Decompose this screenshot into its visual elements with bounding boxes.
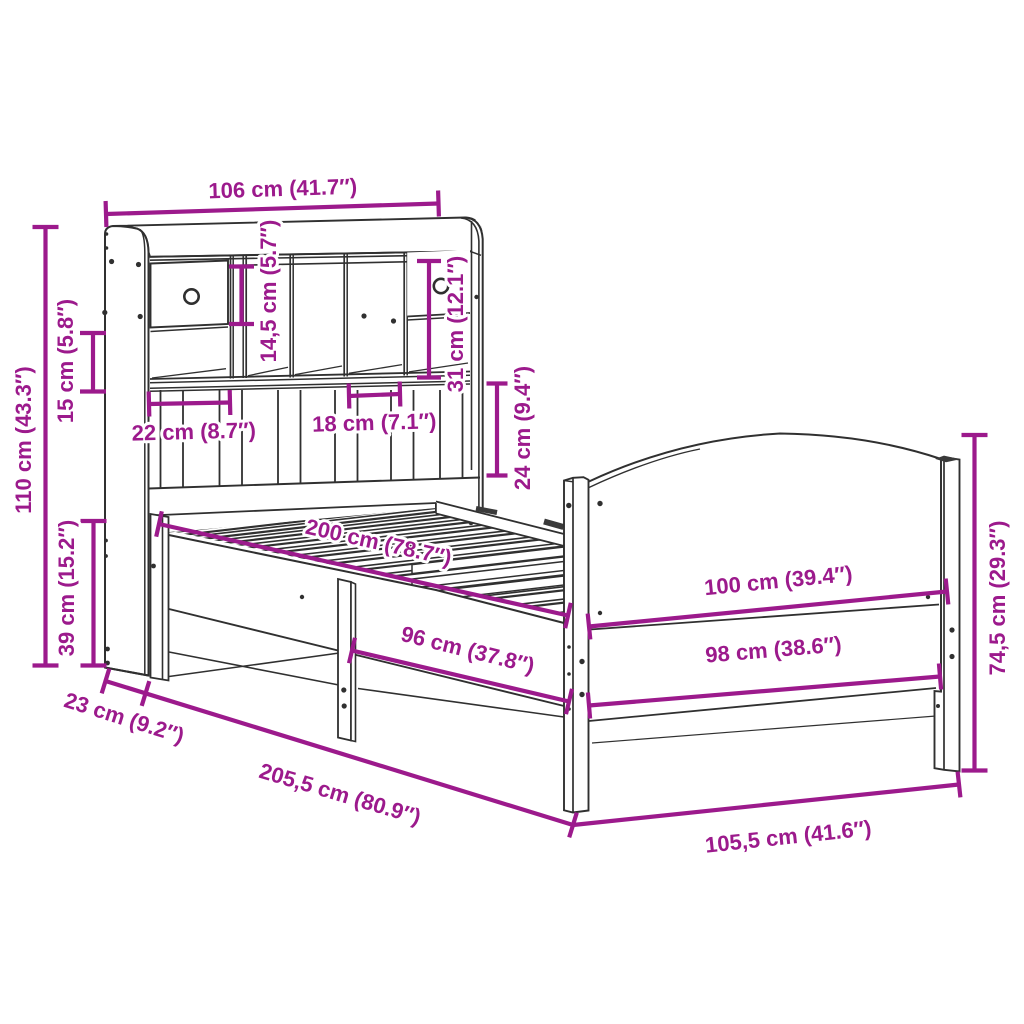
svg-text:24 cm (9.4″): 24 cm (9.4″) [510,366,535,490]
svg-text:22 cm (8.7″): 22 cm (8.7″) [131,417,256,445]
svg-text:31 cm (12.1″): 31 cm (12.1″) [443,256,468,393]
svg-text:110 cm (43.3″): 110 cm (43.3″) [11,366,36,514]
svg-text:74,5 cm (29.3″): 74,5 cm (29.3″) [985,521,1010,676]
svg-text:39 cm (15.2″): 39 cm (15.2″) [54,520,79,657]
svg-text:106 cm (41.7″): 106 cm (41.7″) [208,174,357,204]
svg-text:14,5 cm (5.7″): 14,5 cm (5.7″) [256,220,281,363]
svg-text:15 cm (5.8″): 15 cm (5.8″) [53,299,78,423]
svg-text:18 cm (7.1″): 18 cm (7.1″) [312,408,437,436]
